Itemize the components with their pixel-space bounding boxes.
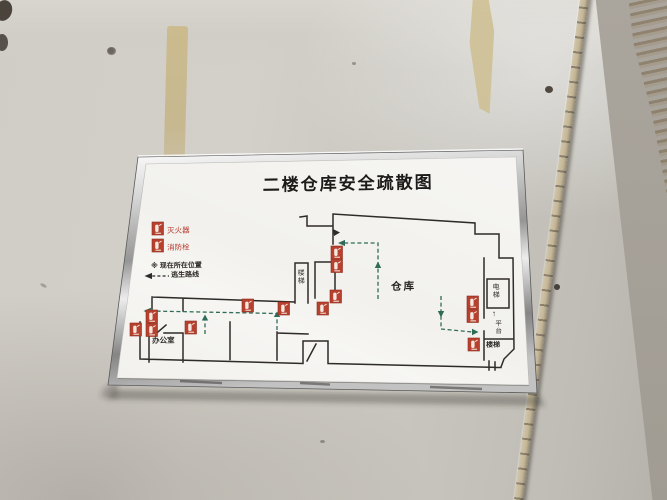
- fire-equipment-marker: [467, 296, 479, 309]
- platform-up-arrow: ↑: [492, 310, 496, 318]
- room-label-elevator: 电梯: [492, 283, 499, 299]
- fire-equipment-marker: [317, 302, 329, 315]
- legend-location-line: ※ 现在所在位置: [151, 262, 202, 270]
- photo-scene: 二楼仓库安全疏散图 灭火器 消防栓 ※ 现在所在位置 逃生路线 仓库 办公室 楼…: [0, 0, 667, 500]
- fire-equipment-marker: [278, 302, 290, 315]
- fire-extinguisher-legend-icon: [152, 222, 164, 235]
- fire-equipment-marker: [146, 310, 158, 323]
- legend-extinguisher-label: 灭火器: [167, 227, 190, 235]
- fire-equipment-marker: [130, 323, 142, 336]
- fire-equipment-marker: [468, 338, 480, 351]
- fire-equipment-marker: [467, 310, 479, 323]
- fire-hydrant-legend-icon: [152, 239, 164, 252]
- room-label-stairs-middle: 楼梯: [297, 269, 304, 285]
- legend-hydrant-label: 消防栓: [167, 244, 190, 252]
- room-label-platform: 平台: [493, 320, 500, 335]
- evacuation-sign: [0, 0, 667, 500]
- fire-equipment-marker: [242, 299, 254, 312]
- fire-equipment-marker: [331, 246, 343, 259]
- fire-equipment-marker: [146, 324, 158, 337]
- sign-shadow: [106, 390, 545, 406]
- fire-equipment-marker: [331, 260, 343, 273]
- room-label-stairs-right: 楼梯: [486, 342, 500, 349]
- room-label-office: 办公室: [152, 337, 175, 345]
- sign-title: 二楼仓库安全疏散图: [252, 174, 444, 194]
- fire-equipment-marker: [330, 290, 342, 303]
- legend-route-label: 逃生路线: [171, 272, 199, 279]
- fire-equipment-marker: [185, 321, 197, 334]
- room-label-warehouse: 仓库: [391, 282, 416, 293]
